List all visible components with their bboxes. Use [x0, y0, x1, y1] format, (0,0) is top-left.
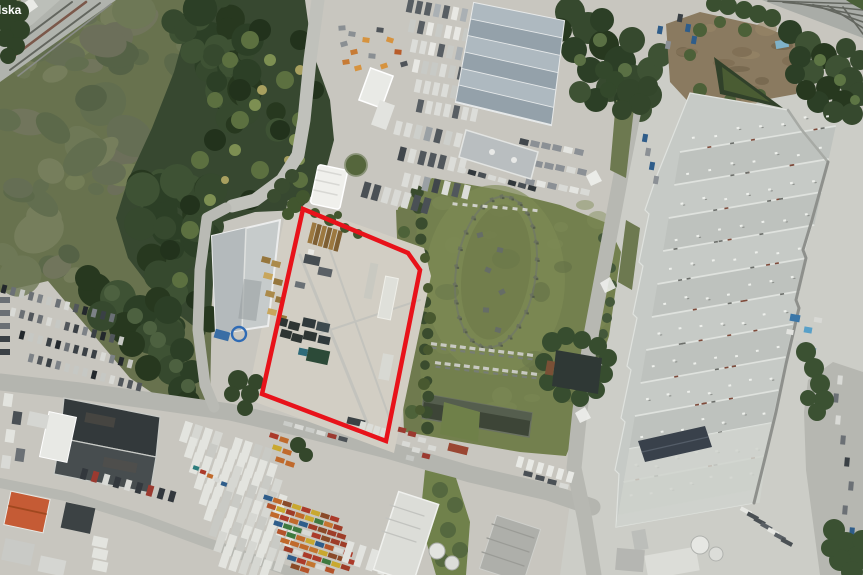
svg-text:lska: lska: [0, 3, 22, 17]
